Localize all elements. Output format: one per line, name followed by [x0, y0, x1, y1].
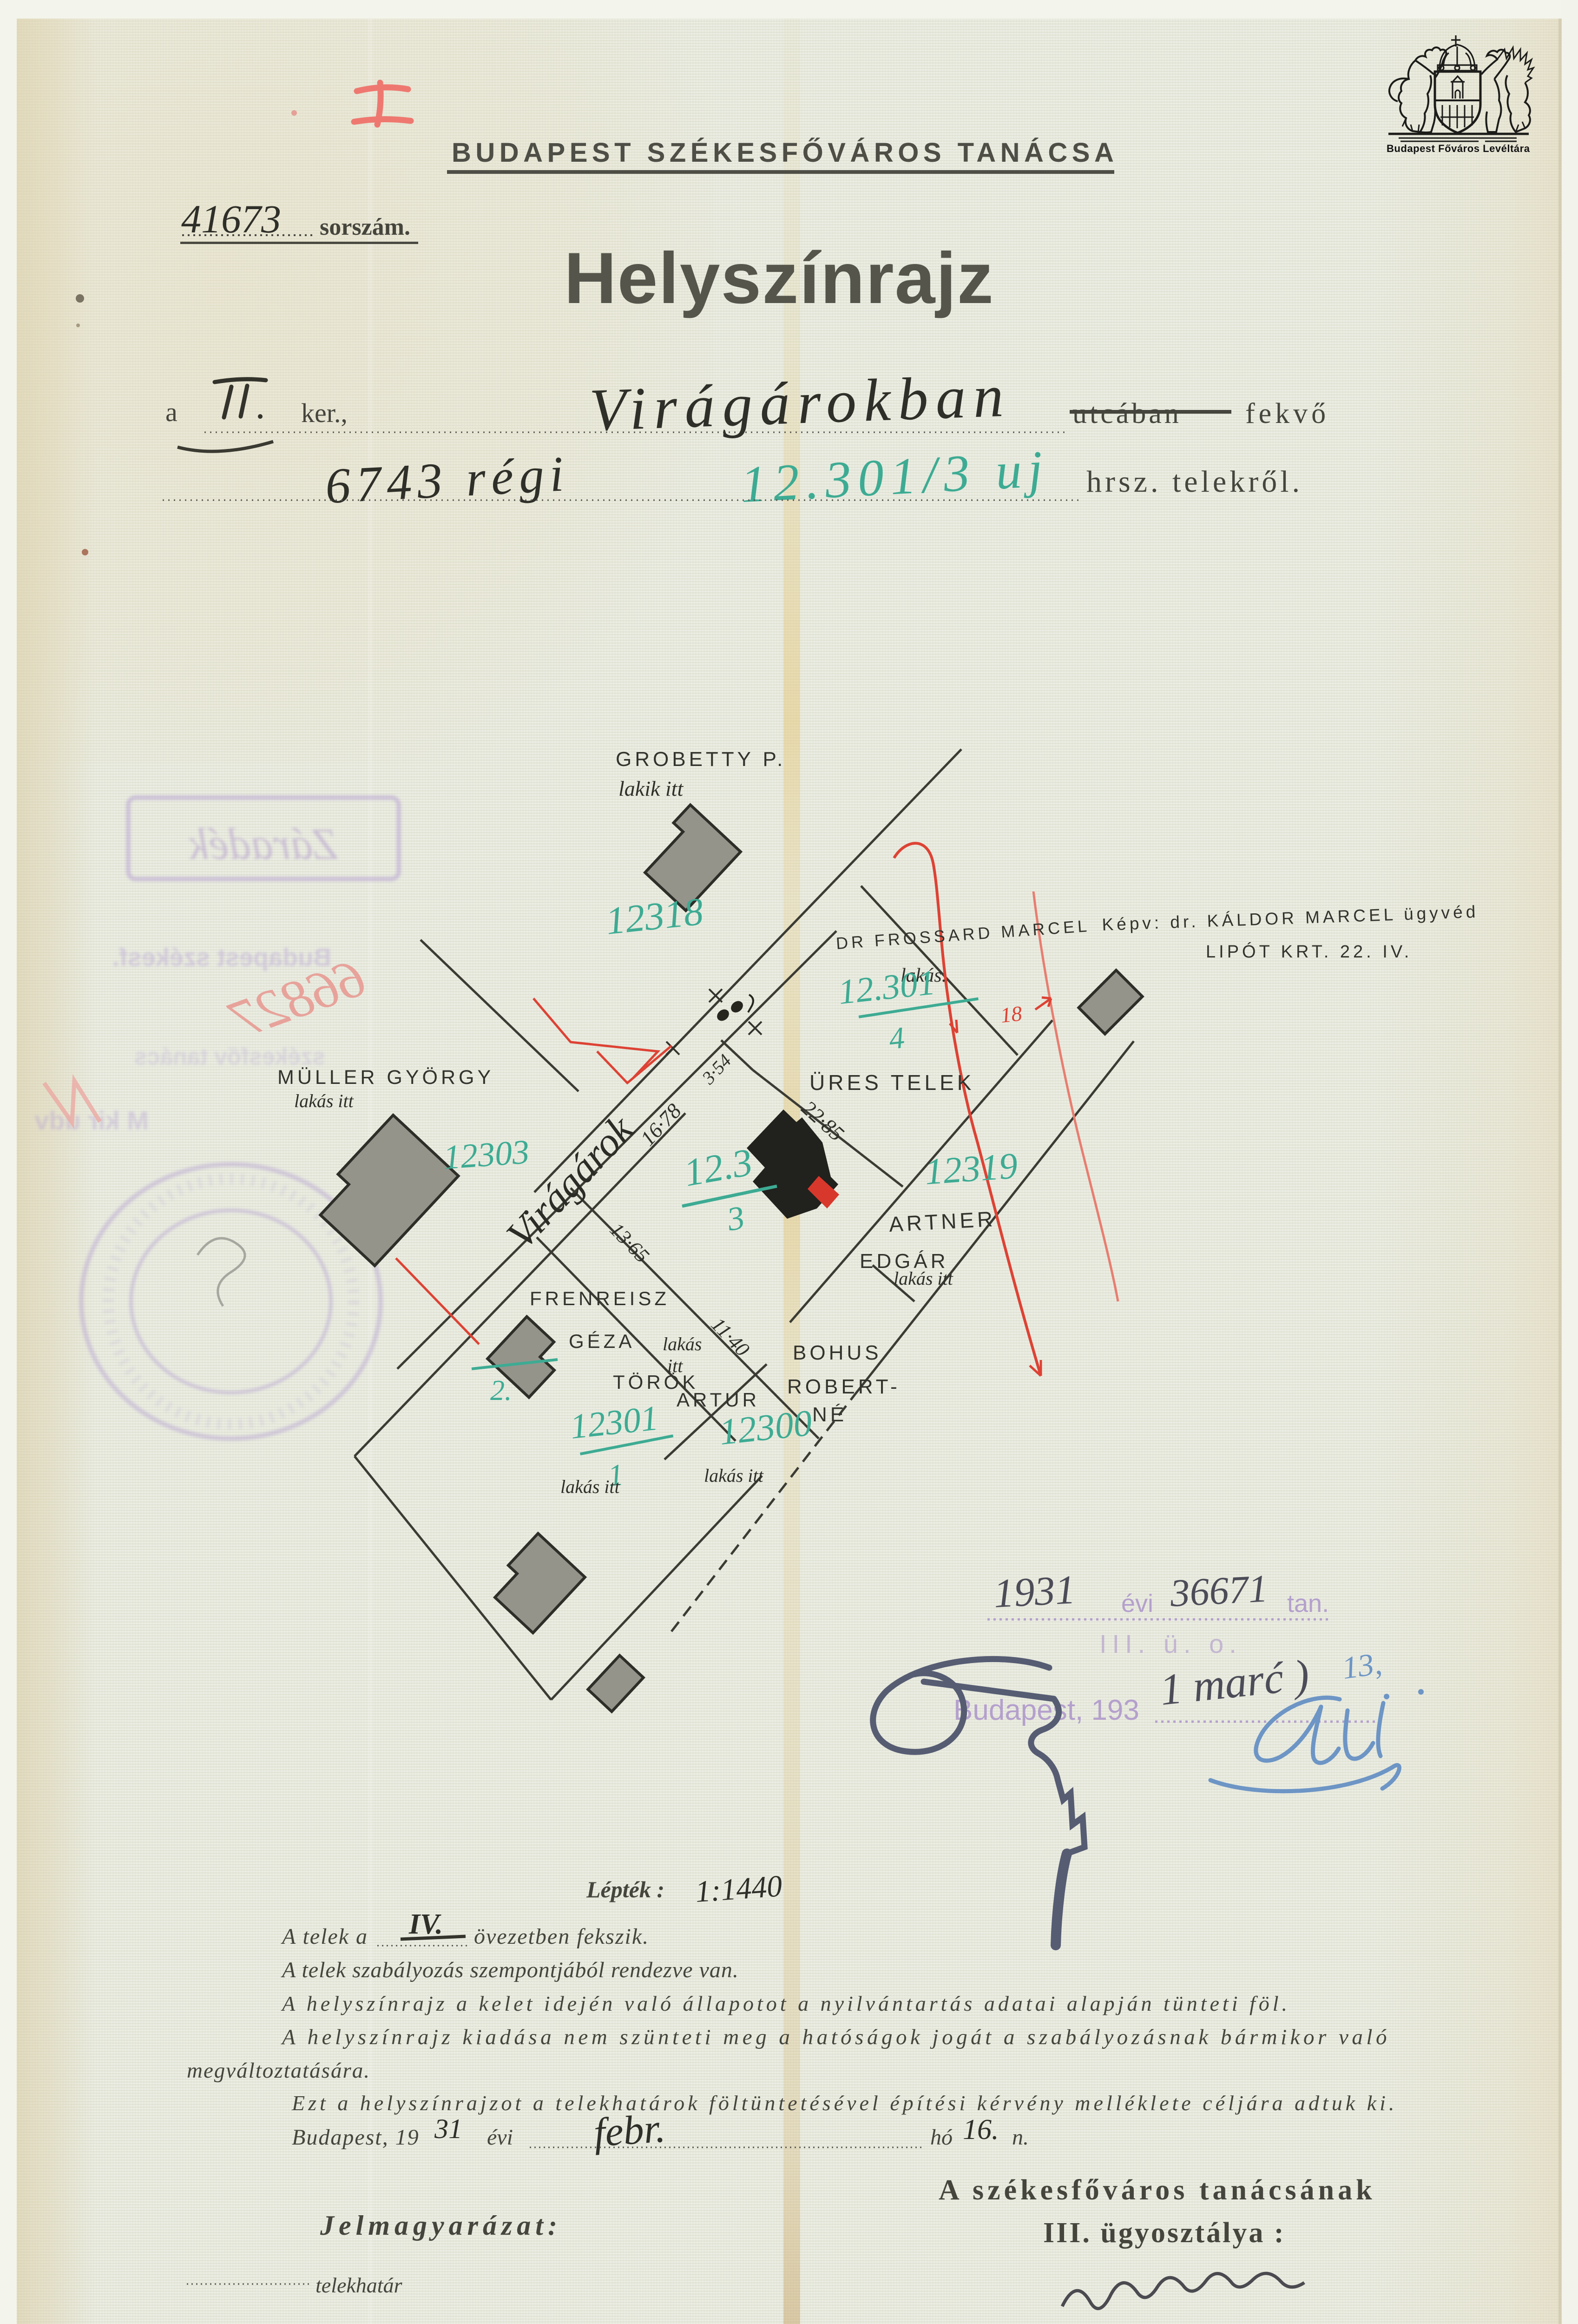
svg-text:lakás itt: lakás itt: [894, 1268, 953, 1289]
svg-text:lakás itt: lakás itt: [294, 1090, 354, 1111]
svg-text:lakás itt: lakás itt: [704, 1465, 764, 1486]
svg-text:a: a: [165, 397, 178, 427]
svg-text:IV.: IV.: [408, 1908, 443, 1940]
svg-text:Budapest, 19: Budapest, 19: [292, 2125, 420, 2150]
svg-text:székesfőv tanács: székesfőv tanács: [134, 1043, 325, 1070]
svg-text:n.: n.: [1012, 2125, 1029, 2150]
svg-text:Záradék: Záradék: [188, 819, 338, 869]
svg-text:lakás: lakás: [663, 1334, 702, 1354]
svg-text:telekhatár: telekhatár: [316, 2273, 403, 2297]
svg-text:36671: 36671: [1169, 1567, 1269, 1615]
svg-text:GROBETTY P.: GROBETTY P.: [616, 748, 786, 771]
svg-text:A telek a: A telek a: [281, 1924, 368, 1949]
svg-text:A székesfőváros tanácsának: A székesfőváros tanácsának: [939, 2174, 1376, 2206]
svg-text:BOHUS: BOHUS: [793, 1341, 881, 1364]
svg-text:febr.: febr.: [592, 2106, 667, 2156]
svg-text:Helyszínrajz: Helyszínrajz: [564, 238, 994, 319]
svg-text:évi: évi: [487, 2125, 513, 2150]
svg-text:ker.,: ker.,: [301, 398, 348, 428]
svg-text:Budapest Főváros Levéltára: Budapest Főváros Levéltára: [1387, 143, 1530, 154]
svg-text:18: 18: [999, 1001, 1023, 1027]
svg-text:13,: 13,: [1340, 1645, 1384, 1686]
svg-text:megváltoztatására.: megváltoztatására.: [187, 2059, 370, 2083]
svg-text:tan.: tan.: [1287, 1590, 1329, 1618]
svg-text:Lépték :: Lépték :: [586, 1876, 664, 1902]
svg-text:12303: 12303: [442, 1133, 530, 1177]
svg-text:12319: 12319: [923, 1145, 1019, 1193]
svg-text:III. ü. o.: III. ü. o.: [1099, 1629, 1242, 1658]
svg-text:31: 31: [434, 2113, 462, 2144]
svg-text:Jelmagyarázat:: Jelmagyarázat:: [320, 2210, 562, 2241]
svg-text:MÜLLER GYÖRGY: MÜLLER GYÖRGY: [277, 1066, 494, 1089]
svg-text:sorszám.: sorszám.: [320, 214, 410, 240]
svg-text:16.: 16.: [963, 2114, 999, 2146]
svg-text:A helyszínrajz kiadása nem: A helyszínrajz kiadása nem szünteti meg …: [281, 2025, 1390, 2049]
svg-text:GÉZA: GÉZA: [569, 1330, 635, 1352]
svg-text:Ezt a helyszínrajzot a tel: Ezt a helyszínrajzot a telekhatárok fölt…: [291, 2091, 1397, 2115]
svg-text:hó: hó: [930, 2125, 953, 2150]
svg-text:évi: évi: [1121, 1590, 1153, 1618]
svg-text:fekvő: fekvő: [1245, 398, 1329, 429]
svg-text:A helyszínrajz a kelet ide: A helyszínrajz a kelet idején való állap…: [281, 1992, 1290, 2015]
svg-text:hrsz. telekről.: hrsz. telekről.: [1086, 465, 1303, 499]
svg-text:lakik itt: lakik itt: [618, 777, 684, 800]
svg-text:LIPÓT KRT. 22. IV.: LIPÓT KRT. 22. IV.: [1206, 942, 1412, 962]
svg-text:III. ügyosztálya :: III. ügyosztálya :: [1043, 2217, 1286, 2249]
svg-text:FRENREISZ: FRENREISZ: [530, 1287, 670, 1309]
svg-text:BUDAPEST SZÉKESFŐVÁROS TANÁCSA: BUDAPEST SZÉKESFŐVÁROS TANÁCSA: [452, 138, 1118, 168]
svg-text:1:1440: 1:1440: [694, 1869, 783, 1909]
svg-text:ARTUR: ARTUR: [677, 1389, 760, 1411]
svg-text:A telek szabályozás szempon: A telek szabályozás szempontjából rendez…: [281, 1958, 739, 1982]
svg-text:2.: 2.: [490, 1375, 512, 1406]
svg-text:övezetben fekszik.: övezetben fekszik.: [474, 1924, 649, 1949]
svg-text:ROBERT-: ROBERT-: [787, 1375, 901, 1398]
svg-text:1931: 1931: [993, 1567, 1077, 1617]
svg-text:lakás itt: lakás itt: [560, 1476, 620, 1497]
svg-text:ÜRES TELEK: ÜRES TELEK: [809, 1070, 974, 1095]
svg-text:NÉ: NÉ: [812, 1403, 847, 1426]
